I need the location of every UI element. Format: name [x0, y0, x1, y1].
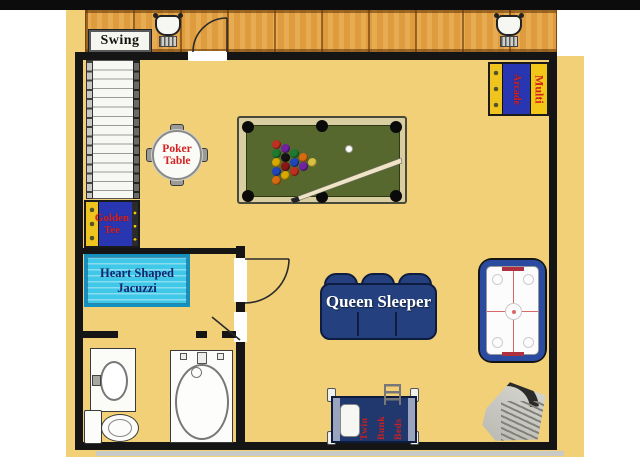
arcade-label: Arcade [511, 74, 522, 105]
stair-stringer [133, 60, 140, 199]
air-hockey-goal-icon [502, 352, 524, 356]
deck-door-opening [188, 51, 227, 61]
top-right-margin [557, 10, 640, 56]
queen-sleeper-label: Queen Sleeper [320, 290, 437, 314]
golden-tee-label: Golden Tee [84, 200, 140, 248]
jacuzzi-room-door-opening [234, 258, 247, 302]
air-hockey-surface [486, 266, 539, 355]
toilet-icon [108, 419, 132, 437]
poker-table-label: Poker Table [146, 124, 208, 186]
pool-ball-icon [290, 149, 299, 158]
pool-ball-icon [308, 158, 317, 167]
bunk-label-col1: Twin [360, 400, 372, 440]
porch-swing-icon [494, 13, 524, 49]
bunk-label-col2: Bunk [377, 400, 389, 440]
bunk-label-col3: Beds [394, 400, 406, 440]
pool-ball-icon [272, 149, 281, 158]
pool-ball-icon [272, 158, 281, 167]
wall-right [549, 52, 557, 450]
swing-seat-icon [496, 15, 522, 36]
air-hockey-circle-icon [492, 274, 503, 285]
arcade-screen-panel: Arcade [502, 64, 531, 114]
multi-label: Multi [532, 75, 547, 104]
bathtub [170, 350, 233, 443]
pool-ball-icon [281, 144, 290, 153]
swing-label: Swing [89, 30, 151, 52]
air-hockey-center-circle-icon [505, 303, 522, 320]
cue-ball-icon [345, 145, 353, 153]
faucet-icon [197, 352, 207, 364]
faucet-knob-icon [180, 353, 187, 360]
poker-label-line1: Poker [162, 143, 191, 155]
air-hockey-table [478, 258, 547, 363]
stair-stringer [86, 60, 93, 199]
faucet-knob-icon [217, 353, 224, 360]
jacuzzi-label-line1: Heart Shaped [100, 266, 174, 280]
pool-ball-icon [281, 171, 290, 180]
sofa-seam [395, 312, 397, 336]
top-border-bar [0, 0, 640, 10]
swing-base-icon [500, 36, 518, 47]
air-hockey-goal-icon [502, 267, 524, 271]
pool-ball-icon [299, 153, 308, 162]
heart-shaped-jacuzzi: Heart Shaped Jacuzzi [84, 254, 190, 307]
bathtub-basin-icon [175, 364, 229, 440]
interior-wall-bathroom [83, 331, 118, 338]
pool-ball-icon [299, 162, 308, 171]
arcade-marquee-panel: Multi [531, 64, 547, 114]
pool-ball-icon [281, 153, 290, 162]
pool-ball-icon [290, 158, 299, 167]
arcade-side-panel [490, 64, 502, 114]
bed-rail [333, 398, 340, 441]
jacuzzi-label-line2: Jacuzzi [117, 281, 157, 295]
pool-ball-icon [272, 140, 281, 149]
sofa-seam [357, 312, 359, 336]
pillow-icon [340, 404, 360, 437]
wall-bottom [75, 442, 557, 450]
bottom-shadow-strip [96, 451, 564, 456]
bathroom-vanity [90, 348, 136, 412]
floorplan: Swing Golden Tee Heart Shaped [0, 0, 640, 457]
air-hockey-center-dot [512, 310, 516, 314]
interior-wall-bathroom [196, 331, 207, 338]
staircase [86, 60, 140, 199]
porch-swing-icon [153, 13, 183, 49]
drain-icon [191, 367, 202, 378]
pool-ball-icon [281, 162, 290, 171]
golden-tee-label-line1: Golden [95, 212, 129, 224]
toilet-icon [84, 410, 102, 444]
air-hockey-circle-icon [523, 274, 534, 285]
poker-label-line2: Table [163, 155, 190, 167]
multi-arcade-game: Arcade Multi [488, 62, 549, 116]
sink-icon [100, 361, 128, 401]
pool-ball-icon [290, 167, 299, 176]
swing-base-icon [159, 36, 177, 47]
interior-wall-bathroom [222, 331, 236, 338]
wall-top [75, 52, 557, 60]
stair-treads [93, 60, 133, 199]
air-hockey-circle-icon [492, 337, 503, 348]
swing-seat-icon [155, 15, 181, 36]
golden-tee-label-line2: Tee [104, 224, 120, 236]
pool-rack [239, 118, 409, 206]
pool-ball-icon [272, 176, 281, 185]
bed-rail [408, 398, 415, 441]
pool-table [237, 116, 407, 204]
wall-left [75, 52, 83, 450]
air-hockey-circle-icon [523, 337, 534, 348]
pool-ball-icon [272, 167, 281, 176]
faucet-icon [92, 375, 101, 386]
